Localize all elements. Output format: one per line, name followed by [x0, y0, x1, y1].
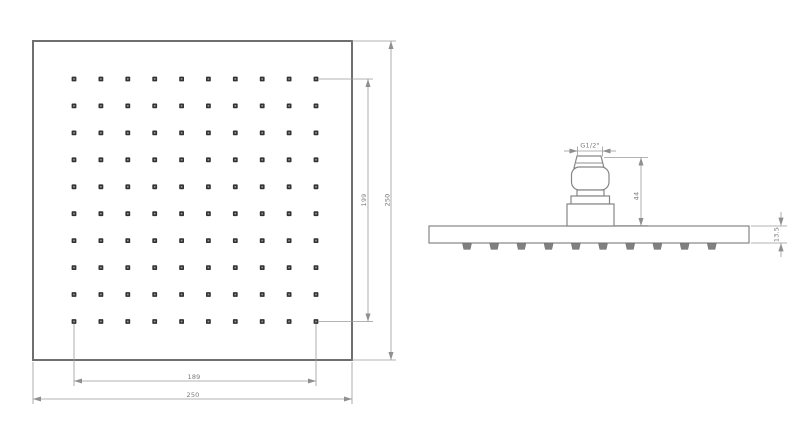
nozzle-hole-center	[208, 78, 210, 80]
nozzle-hole-center	[181, 267, 183, 269]
nozzle-hole-center	[181, 240, 183, 242]
plan-view-outline	[33, 41, 352, 360]
nozzle-hole-center	[181, 132, 183, 134]
nozzle-hole-center	[100, 267, 102, 269]
dim-plate-thickness: 13.5	[751, 212, 787, 257]
nozzle-hole-center	[208, 213, 210, 215]
nozzle-hole-center	[261, 132, 263, 134]
dim-label-plate-thickness: 13.5	[773, 227, 781, 242]
nozzle-hole-center	[73, 213, 75, 215]
nozzle-hole-center	[127, 78, 129, 80]
nozzle-hole-center	[235, 213, 237, 215]
nozzle-hole-center	[73, 267, 75, 269]
nozzle-hole-center	[154, 78, 156, 80]
nozzle-hole-center	[127, 267, 129, 269]
thread-nipple	[574, 156, 604, 168]
nozzle-hole-center	[208, 159, 210, 161]
nozzle-hole-center	[235, 78, 237, 80]
nozzle-hole-center	[100, 132, 102, 134]
nozzle-hole-center	[73, 240, 75, 242]
nozzle-hole-center	[208, 267, 210, 269]
dim-label-thread: G1/2"	[580, 142, 600, 150]
nozzle-hole-center	[100, 78, 102, 80]
nozzle-hole-center	[261, 240, 263, 242]
side-nozzle	[571, 243, 580, 249]
nozzle-hole-center	[315, 240, 317, 242]
technical-drawing-sheet: 199 250 189 250	[0, 0, 800, 442]
nozzle-hole-center	[181, 159, 183, 161]
nozzle-hole-center	[315, 294, 317, 296]
nozzle-hole-center	[154, 159, 156, 161]
nozzle-hole-center	[154, 294, 156, 296]
nozzle-hole-center	[154, 105, 156, 107]
nozzle-hole-center	[100, 213, 102, 215]
nozzle-hole-center	[100, 294, 102, 296]
nozzle-hole-center	[235, 321, 237, 323]
nozzle-hole-center	[127, 105, 129, 107]
nozzle-hole-center	[288, 213, 290, 215]
nozzle-hole-center	[127, 132, 129, 134]
nozzle-hole-center	[288, 240, 290, 242]
side-nozzle-row	[463, 243, 717, 249]
nozzle-hole-center	[261, 159, 263, 161]
nozzle-hole-center	[288, 294, 290, 296]
nozzle-hole-center	[315, 78, 317, 80]
nozzle-hole-center	[288, 105, 290, 107]
nozzle-hole-center	[208, 186, 210, 188]
nozzle-hole-center	[73, 78, 75, 80]
nozzle-hole-center	[181, 186, 183, 188]
side-view: G1/2" 44 13.5	[429, 142, 787, 258]
nozzle-hole-center	[261, 186, 263, 188]
dim-label-holes-span-right: 199	[360, 193, 368, 206]
nozzle-hole-center	[100, 105, 102, 107]
side-nozzle	[653, 243, 662, 249]
nozzle-hole-center	[288, 132, 290, 134]
nozzle-hole-center	[288, 159, 290, 161]
nozzle-hole-center	[127, 240, 129, 242]
nozzle-hole-center	[73, 294, 75, 296]
dim-overall-bottom: 250	[33, 362, 352, 404]
nozzle-hole-center	[208, 240, 210, 242]
nozzle-hole-center	[73, 321, 75, 323]
side-nozzle	[490, 243, 499, 249]
nozzle-hole-center	[261, 78, 263, 80]
nozzle-hole-center	[154, 213, 156, 215]
shower-plate-profile	[429, 226, 749, 243]
side-nozzle	[517, 243, 526, 249]
side-nozzle	[599, 243, 608, 249]
side-nozzle	[463, 243, 472, 249]
nozzle-hole-center	[208, 321, 210, 323]
side-nozzle	[680, 243, 689, 249]
nozzle-hole-center	[127, 321, 129, 323]
nozzle-hole-center	[181, 105, 183, 107]
nozzle-hole-center	[315, 105, 317, 107]
nozzle-hole-center	[154, 132, 156, 134]
nozzle-hole-center	[73, 105, 75, 107]
nozzle-hole-center	[73, 159, 75, 161]
side-nozzle	[544, 243, 553, 249]
connector-assembly	[567, 156, 614, 226]
nozzle-hole-center	[100, 186, 102, 188]
nozzle-hole-center	[181, 321, 183, 323]
connector-collar	[571, 196, 610, 204]
nozzle-hole-center	[235, 294, 237, 296]
nozzle-hole-center	[154, 240, 156, 242]
nozzle-hole-center	[235, 159, 237, 161]
dim-label-holes-span-bottom: 189	[187, 373, 200, 381]
nozzle-hole-center	[288, 321, 290, 323]
nozzle-hole-center	[261, 213, 263, 215]
nozzle-hole-center	[154, 186, 156, 188]
side-nozzle	[626, 243, 635, 249]
nozzle-hole-center	[154, 321, 156, 323]
nozzle-hole-center	[288, 267, 290, 269]
nozzle-hole-center	[100, 159, 102, 161]
nozzle-hole-center	[261, 267, 263, 269]
nozzle-hole-center	[100, 240, 102, 242]
nozzle-hole-center	[315, 213, 317, 215]
side-nozzle	[707, 243, 716, 249]
nozzle-hole-center	[127, 213, 129, 215]
nozzle-hole-center	[127, 186, 129, 188]
nozzle-hole-center	[127, 159, 129, 161]
nozzle-hole-center	[288, 78, 290, 80]
nozzle-hole-center	[261, 294, 263, 296]
dim-overall-right: 250	[352, 41, 396, 360]
swivel-ball	[572, 167, 610, 190]
nozzle-hole-center	[235, 267, 237, 269]
dim-label-overall-bottom: 250	[186, 391, 199, 399]
nozzle-hole-center	[73, 132, 75, 134]
nozzle-hole-center	[181, 213, 183, 215]
nozzle-hole-center	[235, 105, 237, 107]
nozzle-hole-center	[315, 186, 317, 188]
nozzle-hole-center	[208, 132, 210, 134]
nozzle-hole-center	[154, 267, 156, 269]
nozzle-hole-center	[73, 186, 75, 188]
shower-head-technical-drawing: 199 250 189 250	[0, 0, 800, 442]
nozzle-hole-center	[127, 294, 129, 296]
dim-label-overall-right: 250	[384, 193, 392, 206]
nozzle-hole-center	[100, 321, 102, 323]
nozzle-hole-center	[181, 78, 183, 80]
nozzle-hole-center	[235, 240, 237, 242]
nozzle-hole-center	[315, 159, 317, 161]
nozzle-hole-center	[315, 321, 317, 323]
nozzle-hole-center	[181, 294, 183, 296]
nozzle-hole-center	[261, 321, 263, 323]
nozzle-hole-center	[235, 186, 237, 188]
nozzle-hole-center	[235, 132, 237, 134]
nozzle-hole-center	[208, 294, 210, 296]
dim-thread: G1/2"	[564, 142, 616, 157]
nozzle-hole-center	[315, 132, 317, 134]
plan-view: 199 250 189 250	[33, 41, 396, 404]
nozzle-hole-center	[261, 105, 263, 107]
nozzle-hole-center	[208, 105, 210, 107]
nozzle-hole-center	[315, 267, 317, 269]
nozzle-hole-center	[288, 186, 290, 188]
dim-label-connector-height: 44	[633, 192, 641, 201]
ball-flange	[577, 190, 604, 196]
connector-base-block	[567, 204, 614, 226]
